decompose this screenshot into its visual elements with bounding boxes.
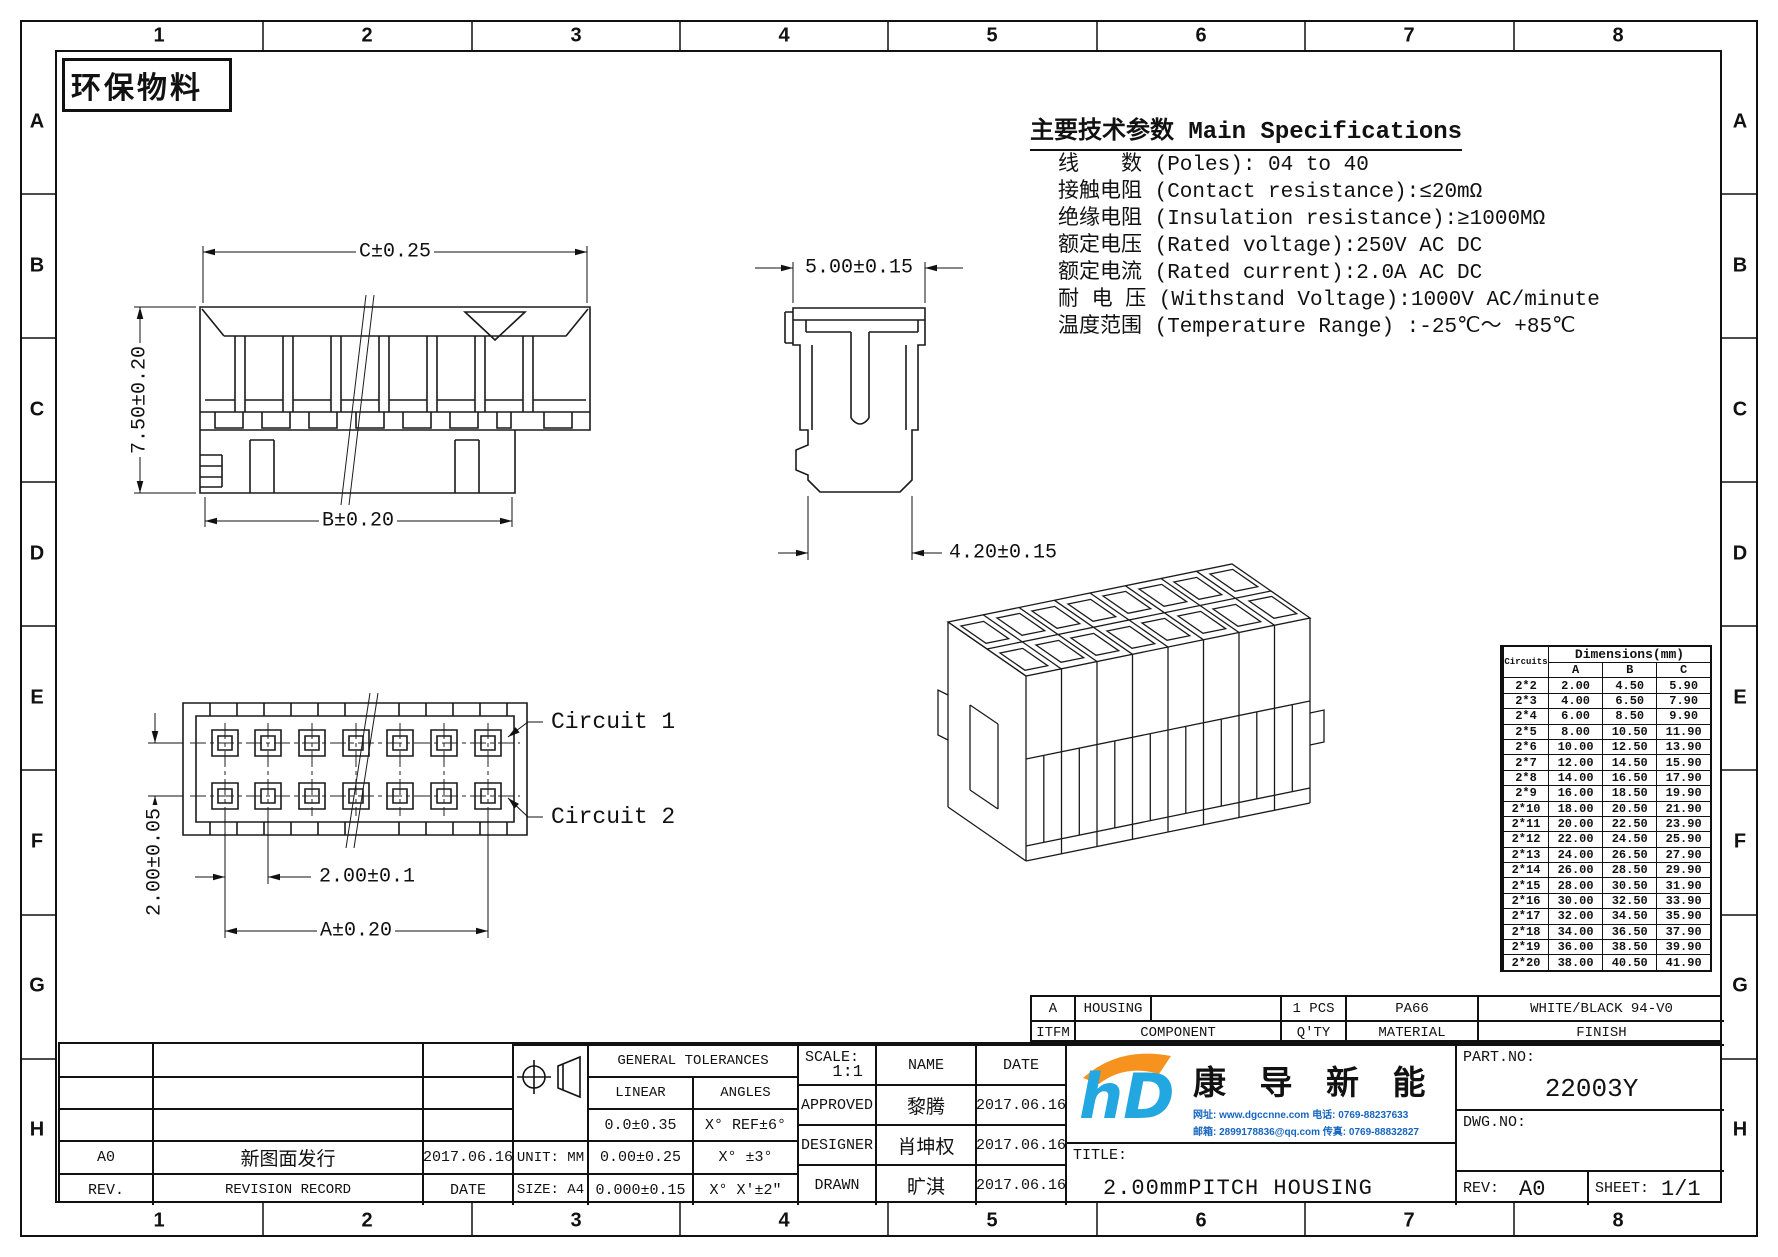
tol-angles-1: X° REF±6° <box>692 1108 797 1140</box>
dim-table-cell: 15.90 <box>1657 755 1711 770</box>
rev-empty-cell <box>60 1108 152 1140</box>
title-cell: TITLE: 2.00mmPITCH HOUSING <box>1065 1142 1455 1205</box>
dim-table-cell: 10.00 <box>1549 739 1603 754</box>
dim-table-row: 2*1732.0034.5035.90 <box>1502 909 1711 924</box>
dim-table-cell: 2*17 <box>1502 909 1549 924</box>
dim-table-cell: 37.90 <box>1657 924 1711 939</box>
dim-table-cell: 6.00 <box>1549 709 1603 724</box>
dim-table-cell: 39.90 <box>1657 940 1711 955</box>
dim-label-height: 7.50±0.20 <box>129 343 152 457</box>
isometric-view <box>938 564 1324 861</box>
part-no-value: 22003Y <box>1457 1074 1724 1104</box>
rev-empty-cell <box>422 1044 512 1076</box>
dim-table-cell: 2*20 <box>1502 955 1549 971</box>
dim-table-cell: 2*14 <box>1502 863 1549 878</box>
dim-table-row: 2*46.008.509.90 <box>1502 709 1711 724</box>
dim-table-row: 2*1936.0038.5039.90 <box>1502 940 1711 955</box>
dim-label-c: C±0.25 <box>356 241 434 264</box>
dim-table-cell: 36.00 <box>1549 940 1603 955</box>
dim-table-cell: 2*18 <box>1502 924 1549 939</box>
kangdao-logo-mark: hD <box>1079 1060 1175 1133</box>
dim-table-cell: 22.50 <box>1603 816 1657 831</box>
dim-table-row: 2*2038.0040.5041.90 <box>1502 955 1711 971</box>
bom-qty: 1 PCS <box>1280 997 1345 1020</box>
rev-empty-cell <box>422 1108 512 1140</box>
tol-linear-1: 0.0±0.35 <box>587 1108 692 1140</box>
dim-table-cell: 12.00 <box>1549 755 1603 770</box>
approved-label: APPROVED <box>797 1084 875 1124</box>
dim-table-cell: 2*12 <box>1502 832 1549 847</box>
bom-h-finish: FINISH <box>1477 1020 1724 1044</box>
dim-table-cell: 25.90 <box>1657 832 1711 847</box>
company-name: 康 导 新 能 源 <box>1193 1056 1455 1104</box>
approved-date: 2017.06.16 <box>975 1084 1065 1124</box>
dim-table-row: 2*58.0010.5011.90 <box>1502 724 1711 739</box>
dim-table-row: 2*22.004.505.90 <box>1502 678 1711 693</box>
rev2-label: REV: <box>1463 1180 1499 1197</box>
dim-table-cell: 34.50 <box>1603 909 1657 924</box>
dwg-no-cell: DWG.NO: <box>1455 1109 1724 1170</box>
designer-label: DESIGNER <box>797 1124 875 1164</box>
bottom-view <box>183 703 527 835</box>
dim-table-cell: 2*7 <box>1502 755 1549 770</box>
designer-date: 2017.06.16 <box>975 1124 1065 1164</box>
dim-table-col-c: C <box>1657 663 1711 678</box>
rev-empty-cell <box>152 1076 422 1108</box>
dim-table-corner: Circuits <box>1502 646 1549 678</box>
dim-table-cell: 4.00 <box>1549 693 1603 708</box>
date-label: DATE <box>422 1173 512 1205</box>
dim-table-body: 2*22.004.505.902*34.006.507.902*46.008.5… <box>1502 678 1711 971</box>
tol-linear-3: 0.000±0.15 <box>587 1173 692 1205</box>
dim-table-cell: 26.00 <box>1549 863 1603 878</box>
sheet-value: 1/1 <box>1661 1177 1701 1202</box>
rev-record: 新图面发行 <box>152 1140 422 1173</box>
tol-linear-2: 0.00±0.25 <box>587 1140 692 1173</box>
dim-table-cell: 2*2 <box>1502 678 1549 693</box>
rev-date: 2017.06.16 <box>422 1140 512 1173</box>
dim-table-cell: 28.50 <box>1603 863 1657 878</box>
dim-table-row: 2*1018.0020.5021.90 <box>1502 801 1711 816</box>
bom-h-component: COMPONENT <box>1074 1020 1280 1044</box>
centerlines <box>190 723 520 816</box>
dim-table-cell: 13.90 <box>1657 739 1711 754</box>
dim-table-cell: 33.90 <box>1657 893 1711 908</box>
circuit2-label: Circuit 2 <box>549 804 677 830</box>
dim-table-cell: 28.00 <box>1549 878 1603 893</box>
sheet-cell: SHEET: 1/1 <box>1587 1170 1724 1205</box>
dim-label-depth: 4.20±0.15 <box>946 542 1060 565</box>
sheet-label: SHEET: <box>1595 1180 1649 1197</box>
dim-table-cell: 14.50 <box>1603 755 1657 770</box>
dim-label-b: B±0.20 <box>319 510 397 533</box>
tol-angles-2: X° ±3° <box>692 1140 797 1173</box>
dim-label-col-pitch: 2.00±0.1 <box>316 866 418 889</box>
dim-table-cell: 38.50 <box>1603 940 1657 955</box>
dim-table-cell: 11.90 <box>1657 724 1711 739</box>
bom-h-material: MATERIAL <box>1345 1020 1477 1044</box>
dim-table-cell: 38.00 <box>1549 955 1603 971</box>
dim-table-cell: 9.90 <box>1657 709 1711 724</box>
drawn-date: 2017.06.16 <box>975 1164 1065 1205</box>
side-view <box>785 308 925 492</box>
dim-table-cell: 32.50 <box>1603 893 1657 908</box>
dim-table-cell: 40.50 <box>1603 955 1657 971</box>
dim-table-cell: 2*5 <box>1502 724 1549 739</box>
rev-empty-cell <box>60 1044 152 1076</box>
dim-table-row: 2*1324.0026.5027.90 <box>1502 847 1711 862</box>
dim-table-cell: 17.90 <box>1657 770 1711 785</box>
dim-table-row: 2*814.0016.5017.90 <box>1502 770 1711 785</box>
dim-table-cell: 36.50 <box>1603 924 1657 939</box>
dim-table-cell: 18.50 <box>1603 786 1657 801</box>
dim-table-cell: 18.00 <box>1549 801 1603 816</box>
dim-table-cell: 24.50 <box>1603 832 1657 847</box>
dim-table-cell: 2.00 <box>1549 678 1603 693</box>
dim-table-cell: 34.00 <box>1549 924 1603 939</box>
date-header: DATE <box>975 1044 1065 1084</box>
dim-table-cell: 20.50 <box>1603 801 1657 816</box>
dim-table-row: 2*1120.0022.5023.90 <box>1502 816 1711 831</box>
scale-cell: SCALE: 1:1 <box>797 1044 875 1084</box>
dim-table-cell: 29.90 <box>1657 863 1711 878</box>
dimensions-table: Circuits Dimensions(mm) A B C 2*22.004.5… <box>1500 645 1712 972</box>
bom-h-item: ITFM <box>1032 1020 1074 1044</box>
rev-empty-cell <box>152 1108 422 1140</box>
dim-table-cell: 30.50 <box>1603 878 1657 893</box>
title-label: TITLE: <box>1073 1147 1127 1164</box>
tol-angles-label: ANGLES <box>692 1076 797 1108</box>
dim-label-span: A±0.20 <box>317 920 395 943</box>
dim-table-cell: 2*8 <box>1502 770 1549 785</box>
dim-table-col-b: B <box>1603 663 1657 678</box>
dim-table-cell: 2*3 <box>1502 693 1549 708</box>
dim-table-cell: 41.90 <box>1657 955 1711 971</box>
tol-linear-label: LINEAR <box>587 1076 692 1108</box>
break-lines <box>341 295 378 848</box>
part-no-label: PART.NO: <box>1463 1049 1535 1066</box>
dim-table-cell: 23.90 <box>1657 816 1711 831</box>
dim-table-cell: 2*10 <box>1502 801 1549 816</box>
dim-label-width: 5.00±0.15 <box>802 257 916 280</box>
bom-material: PA66 <box>1345 997 1477 1020</box>
dim-table-title: Dimensions(mm) <box>1549 646 1712 663</box>
bom-spare-cell <box>1150 997 1280 1020</box>
rev-empty-cell <box>60 1076 152 1108</box>
company-logo-cell: hD 康 导 新 能 源 网址: www.dgccnne.com 电话: 076… <box>1065 1044 1455 1142</box>
approved-name: 黎腾 <box>875 1084 975 1124</box>
bom-table: A HOUSING 1 PCS PA66 WHITE/BLACK 94-V0 I… <box>1030 995 1722 1042</box>
rev-empty-cell <box>152 1044 422 1076</box>
dim-table-cell: 5.90 <box>1657 678 1711 693</box>
dim-table-row: 2*712.0014.5015.90 <box>1502 755 1711 770</box>
drawn-name: 旷淇 <box>875 1164 975 1205</box>
dim-table-cell: 19.90 <box>1657 786 1711 801</box>
part-no-cell: PART.NO: 22003Y <box>1455 1044 1724 1109</box>
title-block: A0 新图面发行 2017.06.16 REV. REVISION RECORD… <box>58 1042 1722 1203</box>
dim-table-row: 2*610.0012.5013.90 <box>1502 739 1711 754</box>
dim-table-cell: 6.50 <box>1603 693 1657 708</box>
size-cell: SIZE: A4 <box>512 1173 587 1205</box>
name-header: NAME <box>875 1044 975 1084</box>
dim-table-cell: 2*16 <box>1502 893 1549 908</box>
bom-component: HOUSING <box>1074 997 1150 1020</box>
dim-table-row: 2*916.0018.5019.90 <box>1502 786 1711 801</box>
scale-value: 1:1 <box>832 1063 863 1082</box>
dim-table-row: 2*1834.0036.5037.90 <box>1502 924 1711 939</box>
dim-table-cell: 8.50 <box>1603 709 1657 724</box>
dim-table-col-a: A <box>1549 663 1603 678</box>
dim-table-cell: 2*19 <box>1502 940 1549 955</box>
dim-table-cell: 35.90 <box>1657 909 1711 924</box>
dim-table-cell: 7.90 <box>1657 693 1711 708</box>
dim-table-cell: 16.00 <box>1549 786 1603 801</box>
dim-table-cell: 8.00 <box>1549 724 1603 739</box>
drawing-title: 2.00mmPITCH HOUSING <box>1103 1176 1373 1201</box>
rev2-value: A0 <box>1519 1177 1545 1202</box>
dim-table-cell: 2*13 <box>1502 847 1549 862</box>
dim-table-row: 2*1426.0028.5029.90 <box>1502 863 1711 878</box>
dim-table-cell: 30.00 <box>1549 893 1603 908</box>
dim-table-cell: 21.90 <box>1657 801 1711 816</box>
unit-cell: UNIT: MM <box>512 1140 587 1173</box>
dim-table-row: 2*1222.0024.5025.90 <box>1502 832 1711 847</box>
dim-table-row: 2*1630.0032.5033.90 <box>1502 893 1711 908</box>
dim-table-cell: 4.50 <box>1603 678 1657 693</box>
dim-table-row: 2*34.006.507.90 <box>1502 693 1711 708</box>
dim-table-cell: 26.50 <box>1603 847 1657 862</box>
rev-value: A0 <box>60 1140 152 1173</box>
rev-label: REV. <box>60 1173 152 1205</box>
dim-table-cell: 2*9 <box>1502 786 1549 801</box>
dim-table-cell: 22.00 <box>1549 832 1603 847</box>
dim-table-cell: 16.50 <box>1603 770 1657 785</box>
dim-table-cell: 24.00 <box>1549 847 1603 862</box>
dim-table-cell: 20.00 <box>1549 816 1603 831</box>
revision-record-label: REVISION RECORD <box>152 1173 422 1205</box>
dim-table-row: 2*1528.0030.5031.90 <box>1502 878 1711 893</box>
bom-h-qty: Q'TY <box>1280 1020 1345 1044</box>
dim-label-row-pitch: 2.00±0.05 <box>144 805 167 919</box>
drawing-sheet: 1 2 3 4 5 6 7 8 1 2 3 4 5 6 7 8 A B C D … <box>0 0 1778 1257</box>
projection-symbol-cell <box>512 1044 587 1140</box>
general-tolerances-title: GENERAL TOLERANCES <box>587 1044 797 1076</box>
bom-finish: WHITE/BLACK 94-V0 <box>1477 997 1724 1020</box>
circuit1-label: Circuit 1 <box>549 709 677 735</box>
dwg-no-label: DWG.NO: <box>1463 1114 1526 1131</box>
rev-cell: REV: A0 <box>1455 1170 1587 1205</box>
dim-table-cell: 2*15 <box>1502 878 1549 893</box>
dim-table-cell: 12.50 <box>1603 739 1657 754</box>
dim-table-cell: 32.00 <box>1549 909 1603 924</box>
dim-table-cell: 2*4 <box>1502 709 1549 724</box>
company-contact-1: 网址: www.dgccnne.com 电话: 0769-88237633 <box>1193 1106 1408 1121</box>
dim-table-cell: 14.00 <box>1549 770 1603 785</box>
rev-empty-cell <box>422 1076 512 1108</box>
dim-table-cell: 2*6 <box>1502 739 1549 754</box>
dim-table-cell: 27.90 <box>1657 847 1711 862</box>
company-contact-2: 邮箱: 2899178836@qq.com 传真: 0769-88832827 <box>1193 1123 1419 1138</box>
third-angle-projection-icon <box>514 1046 584 1108</box>
front-view <box>200 307 590 493</box>
drawn-label: DRAWN <box>797 1164 875 1205</box>
dim-table-cell: 10.50 <box>1603 724 1657 739</box>
dim-table-cell: 31.90 <box>1657 878 1711 893</box>
designer-name: 肖坤权 <box>875 1124 975 1164</box>
tol-angles-3: X° X'±2" <box>692 1173 797 1205</box>
dim-table-cell: 2*11 <box>1502 816 1549 831</box>
contact-holes <box>212 730 501 809</box>
bom-item-no: A <box>1032 997 1074 1020</box>
